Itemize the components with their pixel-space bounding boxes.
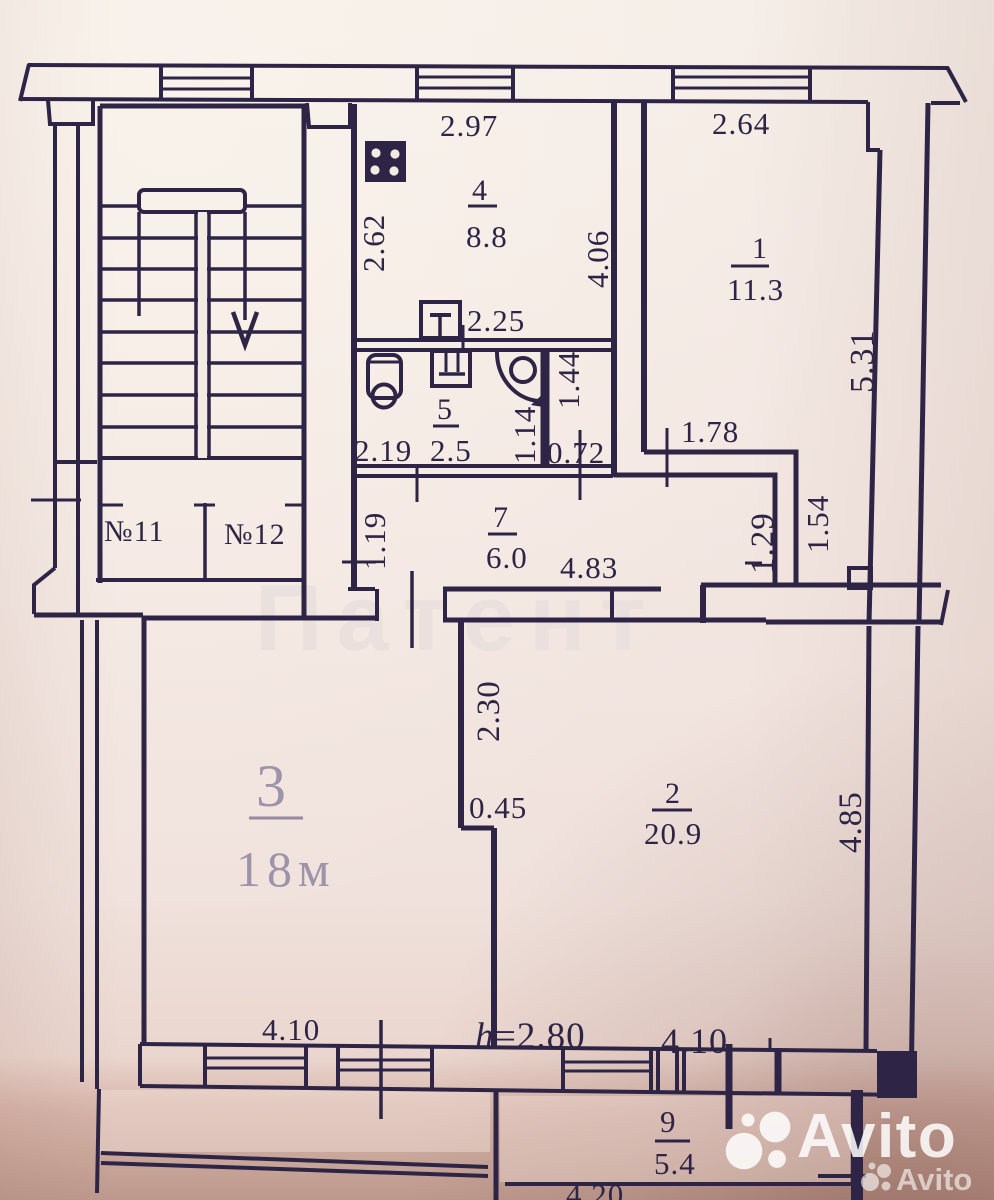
svg-text:Avito: Avito	[896, 1162, 972, 1197]
svg-text:0.45: 0.45	[469, 790, 527, 825]
svg-text:1.78: 1.78	[681, 414, 739, 449]
svg-text:1: 1	[752, 232, 768, 265]
svg-text:7: 7	[493, 501, 509, 534]
svg-text:5: 5	[437, 393, 453, 426]
svg-text:20.9: 20.9	[644, 816, 702, 851]
svg-text:h: h	[475, 1016, 495, 1057]
svg-text:№12: №12	[224, 518, 286, 551]
svg-text:2.64: 2.64	[712, 106, 770, 141]
svg-text:4.20: 4.20	[566, 1177, 624, 1200]
svg-text:4.83: 4.83	[560, 550, 618, 585]
svg-text:6.0: 6.0	[486, 540, 528, 575]
svg-text:4.85: 4.85	[833, 791, 869, 853]
svg-text:4.10: 4.10	[262, 1012, 320, 1047]
svg-text:2.30: 2.30	[471, 680, 507, 742]
svg-text:9: 9	[660, 1104, 677, 1139]
svg-text:2.62: 2.62	[356, 214, 391, 272]
svg-text:1.44: 1.44	[551, 351, 586, 409]
svg-text:18м: 18м	[236, 841, 336, 897]
svg-text:4.10: 4.10	[661, 1021, 728, 1061]
svg-text:1.19: 1.19	[357, 512, 392, 570]
svg-text:4.06: 4.06	[580, 230, 615, 288]
svg-text:№11: №11	[104, 515, 165, 548]
svg-text:0.72: 0.72	[547, 435, 605, 470]
svg-text:3: 3	[256, 753, 286, 819]
svg-text:2.19: 2.19	[354, 433, 412, 468]
svg-text:=2.80: =2.80	[495, 1016, 586, 1057]
svg-text:2.5: 2.5	[430, 433, 472, 468]
svg-text:1.14: 1.14	[507, 406, 542, 464]
svg-text:8.8: 8.8	[466, 219, 508, 254]
svg-text:1.54: 1.54	[800, 495, 835, 553]
svg-text:11.3: 11.3	[727, 272, 784, 307]
svg-text:5.4: 5.4	[654, 1146, 696, 1181]
svg-text:Avito: Avito	[797, 1102, 957, 1171]
svg-text:2: 2	[665, 777, 681, 810]
svg-text:2.25: 2.25	[467, 303, 525, 338]
svg-text:4: 4	[472, 174, 488, 207]
svg-text:2.97: 2.97	[440, 108, 498, 143]
svg-text:1.29: 1.29	[745, 512, 781, 574]
